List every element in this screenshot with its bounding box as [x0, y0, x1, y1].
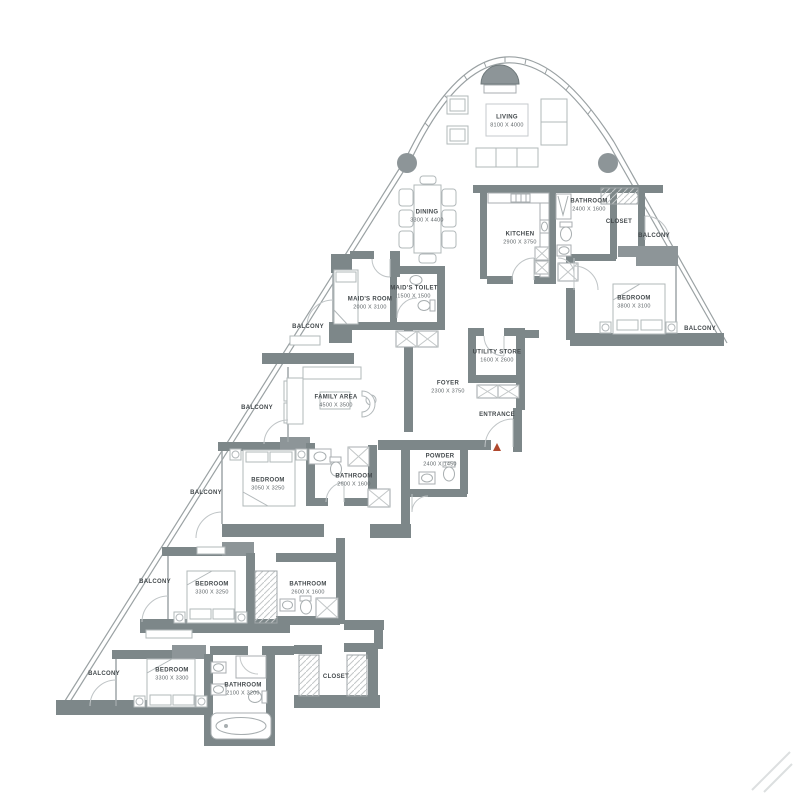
room-label-bedroom-3: BEDROOM3300 X 3250: [195, 582, 228, 597]
room-label-bathroom-2: BATHROOM2600 X 1600: [335, 474, 372, 489]
toilet-icon: [262, 691, 267, 703]
balcony-bench: [290, 336, 320, 345]
entrance-marker: [493, 443, 501, 451]
dining-chair-icon: [419, 254, 436, 263]
room-label-bathroom-3: BATHROOM2600 X 1600: [289, 582, 326, 597]
room-label-entrance: ENTRANCE: [479, 412, 515, 420]
dresser-icon: [197, 547, 225, 554]
floorplan: LIVING8100 X 4000 DINING3300 X 4400 KITC…: [0, 0, 800, 800]
room-label-bedroom-right: BEDROOM3800 X 3100: [617, 296, 650, 311]
room-label-balcony-family: BALCONY: [241, 405, 273, 413]
toilet-icon: [560, 222, 572, 227]
room-label-balcony-top-right: BALCONY: [638, 233, 670, 241]
room-label-bathroom-4: BATHROOM2100 X 3200: [224, 683, 261, 698]
dining-chair-icon: [442, 231, 456, 248]
room-label-family-area: FAMILY AREA4500 X 3500: [314, 395, 357, 410]
outer-shell: [63, 57, 727, 705]
dining-chair-icon: [399, 231, 413, 248]
room-label-dining: DINING3300 X 4400: [410, 210, 443, 225]
room-label-kitchen: KITCHEN2900 X 3750: [503, 232, 536, 247]
dining-chair-icon: [442, 189, 456, 206]
dining-chair-icon: [442, 210, 456, 227]
room-label-balcony-bed2: BALCONY: [190, 490, 222, 498]
sofa-icon: [476, 148, 538, 167]
room-label-bedroom-2: BEDROOM3050 X 3250: [251, 478, 284, 493]
corner-mark: [752, 752, 792, 792]
column: [397, 153, 417, 173]
toilet-icon: [330, 457, 341, 462]
room-label-living: LIVING8100 X 4000: [490, 115, 523, 130]
floorplan-drawing: [0, 0, 800, 800]
room-label-balcony-maid: BALCONY: [292, 324, 324, 332]
bed-icon: [174, 571, 247, 623]
room-label-balcony-bed3: BALCONY: [139, 579, 171, 587]
living-furniture: [447, 96, 567, 167]
room-label-balcony-right: BALCONY: [684, 326, 716, 334]
dining-chair-icon: [420, 176, 436, 184]
room-label-powder: POWDER2400 X 1450: [423, 454, 456, 469]
room-label-maids-toilet: MAID'S TOILET1500 X 1500: [390, 286, 438, 301]
room-label-utility-store: UTILITY STORE1600 X 2600: [473, 350, 522, 365]
room-label-bathroom-top: BATHROOM2400 X 1600: [570, 199, 607, 214]
toilet-icon: [430, 300, 435, 311]
sofa-icon: [303, 367, 361, 379]
room-label-bedroom-4: BEDROOM3300 X 3300: [155, 668, 188, 683]
column: [598, 153, 618, 173]
console-table: [484, 85, 516, 93]
room-label-closet-top: CLOSET: [606, 219, 632, 227]
bed-icon: [134, 659, 207, 707]
room-label-balcony-bed4: BALCONY: [88, 671, 120, 679]
room-label-foyer: FOYER2300 X 3750: [431, 381, 464, 396]
dining-chair-icon: [399, 189, 413, 206]
sofa-icon: [287, 378, 303, 424]
room-label-maids-room: MAID'S ROOM2000 X 3100: [348, 297, 392, 312]
sink-icon: [410, 276, 422, 285]
room-label-closet-bottom: CLOSET: [323, 674, 349, 682]
dresser-icon: [146, 630, 192, 638]
